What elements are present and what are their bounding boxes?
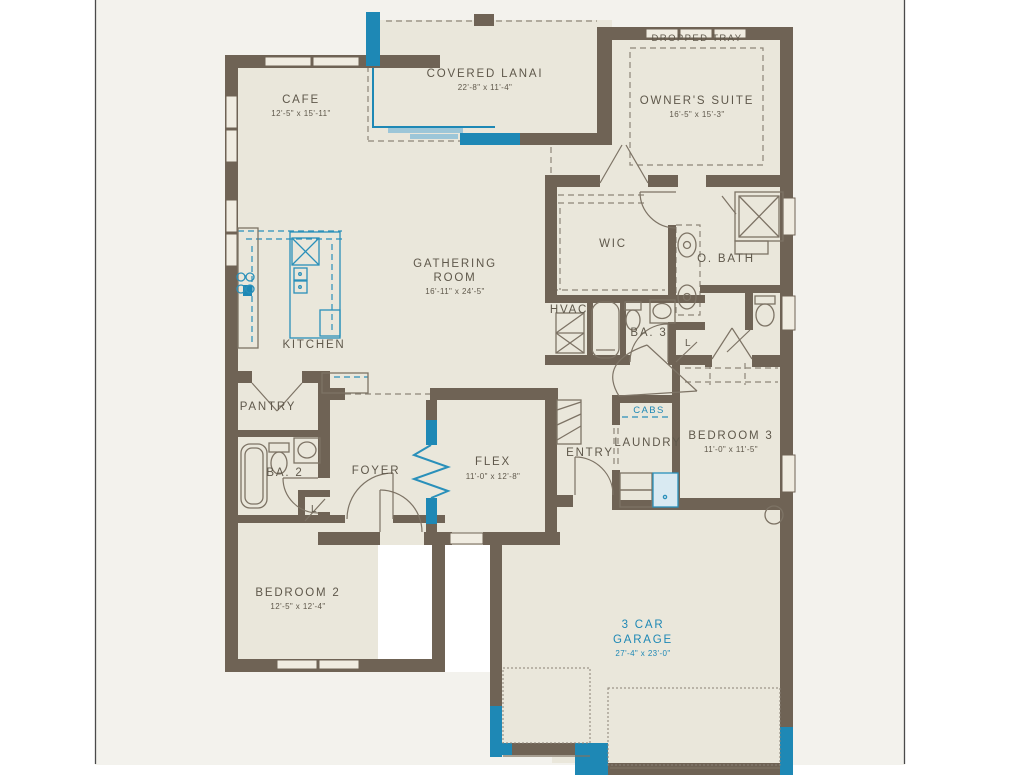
room-label-garage-2: GARAGE (613, 634, 673, 646)
room-dims-garage: 27'-4" x 23'-0" (615, 649, 670, 658)
room-label-cafe: CAFE (282, 94, 320, 106)
room-label-wic: WIC (599, 238, 627, 250)
room-label-gathering-1: GATHERING (413, 258, 497, 270)
room-label-entry: ENTRY (566, 447, 614, 459)
laundry-cabs-label: CABS (633, 405, 664, 416)
room-label-owners-suite: OWNER'S SUITE (640, 95, 754, 107)
room-label-bedroom2: BEDROOM 2 (255, 587, 340, 599)
floor-plan-page: CAFE 12'-5" x 15'-11" COVERED LANAI 22'-… (0, 0, 1012, 783)
room-label-bath2: BA. 2 (266, 467, 303, 479)
linen-label-bath2: L (311, 504, 317, 515)
room-dims-cafe: 12'-5" x 15'-11" (271, 109, 330, 118)
room-label-pantry: PANTRY (240, 401, 296, 413)
room-label-kitchen: KITCHEN (282, 339, 345, 351)
room-label-bath3: BA. 3 (630, 327, 667, 339)
room-label-bedroom3: BEDROOM 3 (688, 430, 773, 442)
room-dims-flex: 11'-0" x 12'-8" (466, 472, 521, 481)
floor-plan-svg: CAFE 12'-5" x 15'-11" COVERED LANAI 22'-… (0, 0, 1012, 783)
room-label-laundry: LAUNDRY (614, 437, 681, 449)
laundry-sink (653, 473, 678, 507)
room-dims-covered-lanai: 22'-8" x 11'-4" (458, 83, 513, 92)
room-dims-owners-suite: 16'-5" x 15'-3" (669, 110, 724, 119)
room-label-foyer: FOYER (352, 465, 401, 477)
room-dims-bedroom2: 12'-5" x 12'-4" (270, 602, 325, 611)
room-label-hvac: HVAC (550, 304, 588, 316)
room-dims-gathering: 16'-11" x 24'-5" (425, 287, 484, 296)
room-label-covered-lanai: COVERED LANAI (427, 68, 544, 80)
room-dims-bedroom3: 11'-0" x 11'-5" (704, 445, 758, 454)
room-label-gathering-2: ROOM (434, 272, 477, 284)
linen-label-bath3: L (685, 338, 691, 349)
room-label-garage-1: 3 CAR (622, 619, 665, 631)
room-label-flex: FLEX (475, 456, 511, 468)
room-label-owners-bath: O. BATH (697, 253, 755, 265)
dropped-tray-label: DROPPED TRAY (652, 33, 743, 44)
